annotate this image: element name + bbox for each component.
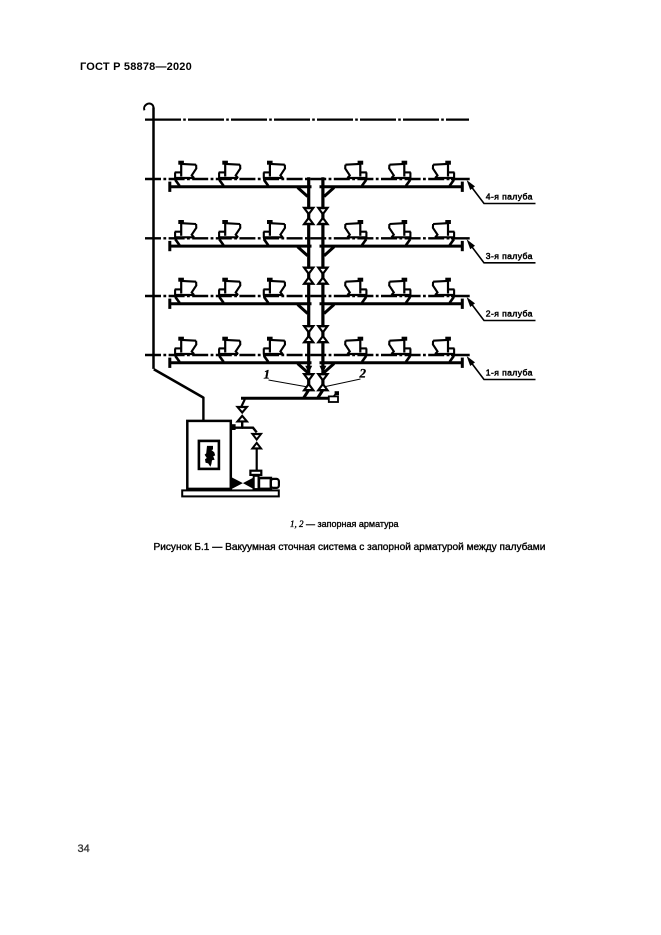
svg-text:1: 1 [264, 367, 271, 382]
svg-text:4-я палуба: 4-я палуба [486, 192, 533, 202]
svg-text:1-я палуба: 1-я палуба [486, 368, 533, 378]
svg-text:2-я палуба: 2-я палуба [486, 309, 533, 319]
svg-text:2: 2 [359, 366, 367, 381]
svg-text:3-я палуба: 3-я палуба [486, 251, 533, 261]
